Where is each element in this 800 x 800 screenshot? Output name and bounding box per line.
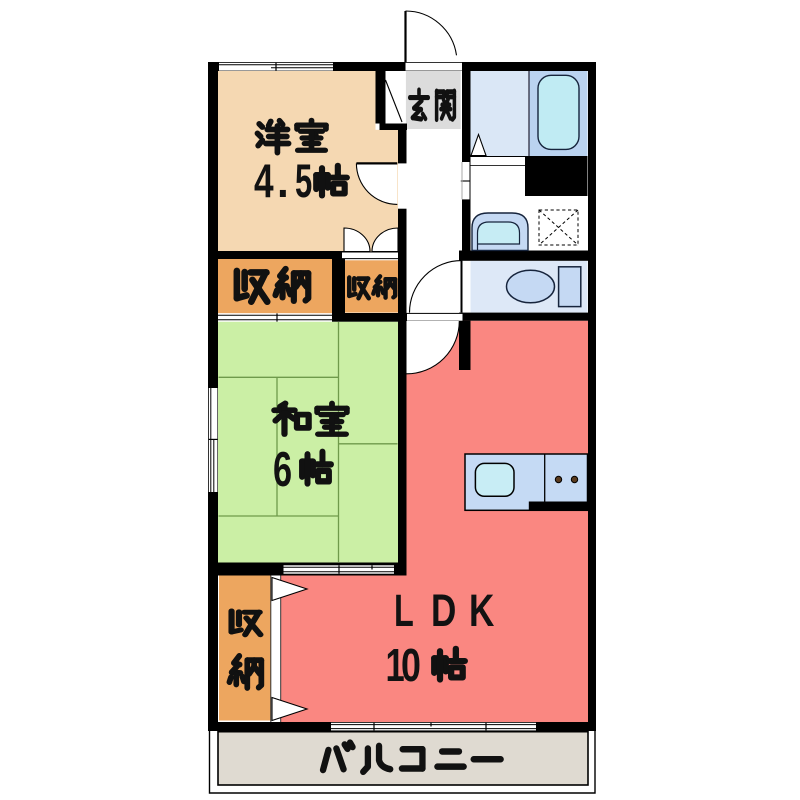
- svg-text:0: 0: [401, 640, 421, 691]
- svg-text:L: L: [394, 587, 414, 636]
- svg-text:.: .: [277, 156, 289, 208]
- svg-text:5: 5: [295, 156, 312, 208]
- svg-text:K: K: [469, 585, 494, 636]
- svg-text:D: D: [431, 585, 456, 636]
- svg-text:4: 4: [254, 154, 274, 207]
- svg-text:6: 6: [273, 442, 292, 496]
